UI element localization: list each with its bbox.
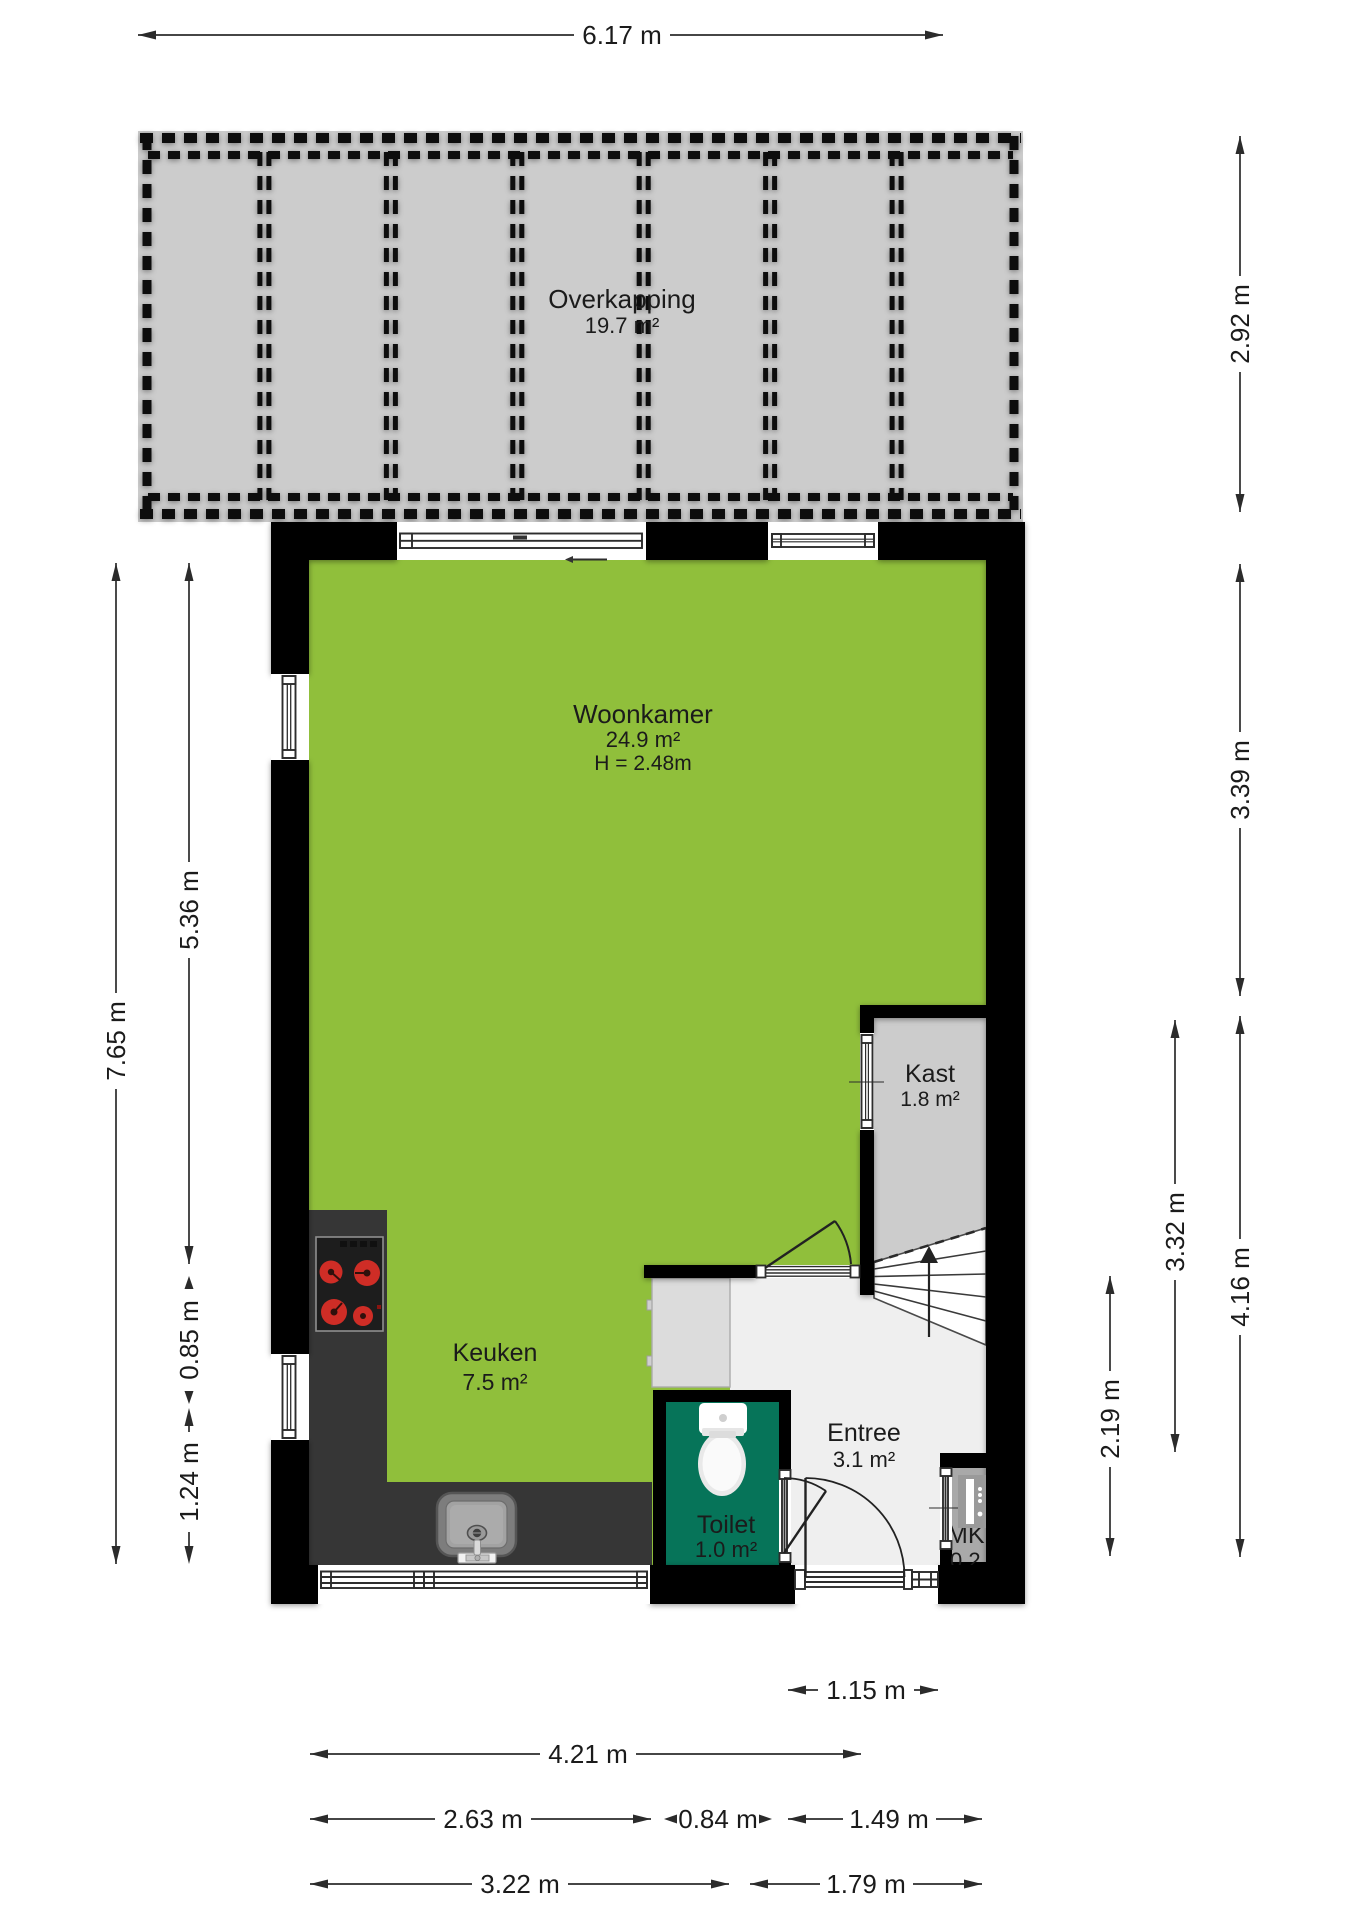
svg-text:1.15 m: 1.15 m bbox=[826, 1675, 906, 1705]
svg-text:7.65 m: 7.65 m bbox=[101, 1001, 131, 1081]
svg-text:1.49 m: 1.49 m bbox=[849, 1804, 929, 1834]
svg-text:0.84 m: 0.84 m bbox=[678, 1804, 758, 1834]
svg-text:2.19 m: 2.19 m bbox=[1095, 1379, 1125, 1459]
svg-text:Toilet: Toilet bbox=[697, 1511, 755, 1539]
svg-text:3.22 m: 3.22 m bbox=[480, 1869, 560, 1899]
svg-text:Overkapping: Overkapping bbox=[548, 284, 695, 314]
svg-text:3.1 m²: 3.1 m² bbox=[833, 1447, 895, 1472]
svg-text:2.92 m: 2.92 m bbox=[1225, 284, 1255, 364]
svg-text:Kast: Kast bbox=[905, 1060, 955, 1088]
svg-text:Keuken: Keuken bbox=[453, 1339, 538, 1367]
svg-text:Woonkamer: Woonkamer bbox=[573, 699, 713, 729]
svg-text:1.79 m: 1.79 m bbox=[826, 1869, 906, 1899]
svg-text:1.24 m: 1.24 m bbox=[174, 1442, 204, 1522]
svg-text:7.5 m²: 7.5 m² bbox=[462, 1369, 528, 1395]
svg-text:3.39 m: 3.39 m bbox=[1225, 740, 1255, 820]
svg-text:4.16 m: 4.16 m bbox=[1225, 1247, 1255, 1327]
svg-text:1.8 m²: 1.8 m² bbox=[900, 1088, 960, 1111]
svg-text:1.0 m²: 1.0 m² bbox=[695, 1537, 757, 1562]
svg-text:19.7 m²: 19.7 m² bbox=[585, 313, 660, 338]
svg-text:24.9 m²: 24.9 m² bbox=[606, 727, 681, 752]
svg-text:H = 2.48m: H = 2.48m bbox=[594, 752, 691, 775]
svg-text:4.21 m: 4.21 m bbox=[548, 1739, 628, 1769]
svg-text:6.17 m: 6.17 m bbox=[582, 20, 662, 50]
svg-text:Entree: Entree bbox=[827, 1419, 901, 1447]
svg-text:5.36 m: 5.36 m bbox=[174, 870, 204, 950]
svg-text:2.63 m: 2.63 m bbox=[443, 1804, 523, 1834]
svg-text:0.85 m: 0.85 m bbox=[174, 1300, 204, 1380]
svg-text:3.32 m: 3.32 m bbox=[1160, 1192, 1190, 1272]
